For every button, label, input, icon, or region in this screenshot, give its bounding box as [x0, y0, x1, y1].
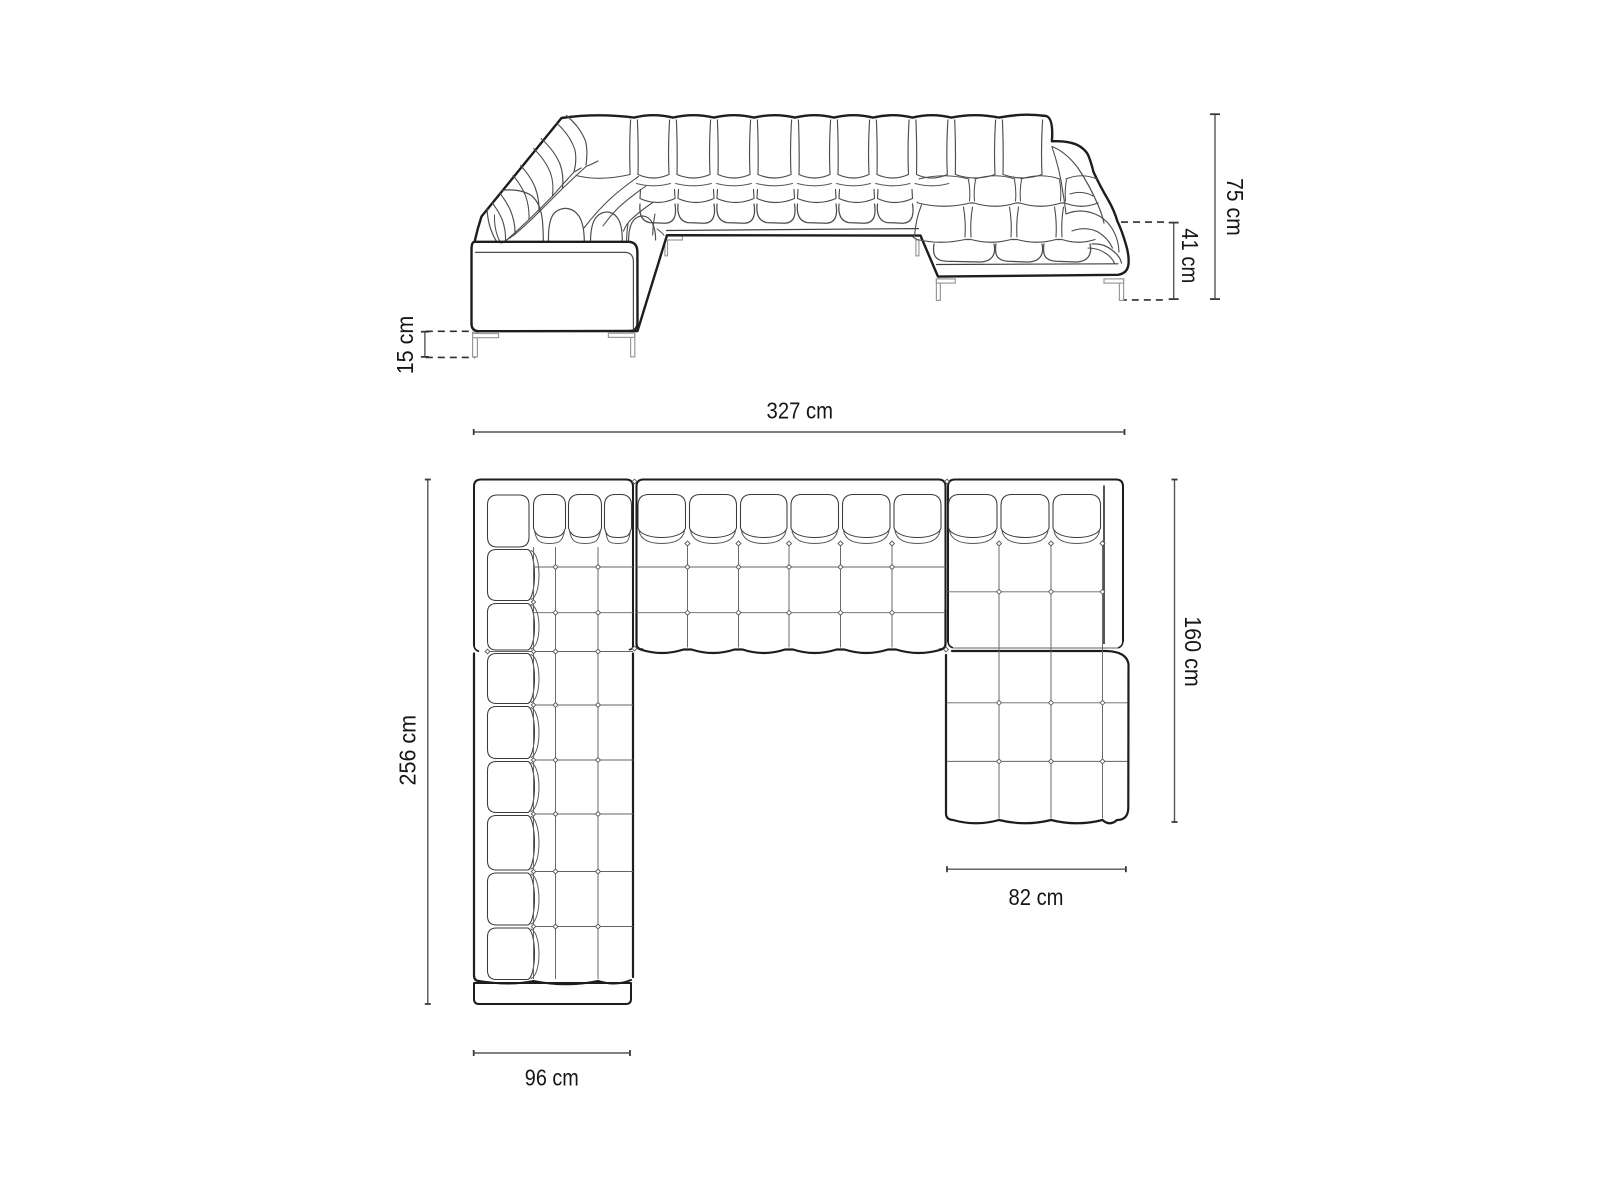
svg-text:96 cm: 96 cm — [525, 1065, 579, 1091]
svg-text:160 cm: 160 cm — [1180, 616, 1206, 687]
svg-text:256 cm: 256 cm — [395, 715, 421, 786]
svg-text:15 cm: 15 cm — [392, 316, 418, 375]
svg-text:82 cm: 82 cm — [1009, 884, 1064, 910]
svg-text:41 cm: 41 cm — [1177, 228, 1203, 283]
svg-text:327 cm: 327 cm — [767, 398, 834, 424]
svg-text:75 cm: 75 cm — [1222, 178, 1248, 236]
